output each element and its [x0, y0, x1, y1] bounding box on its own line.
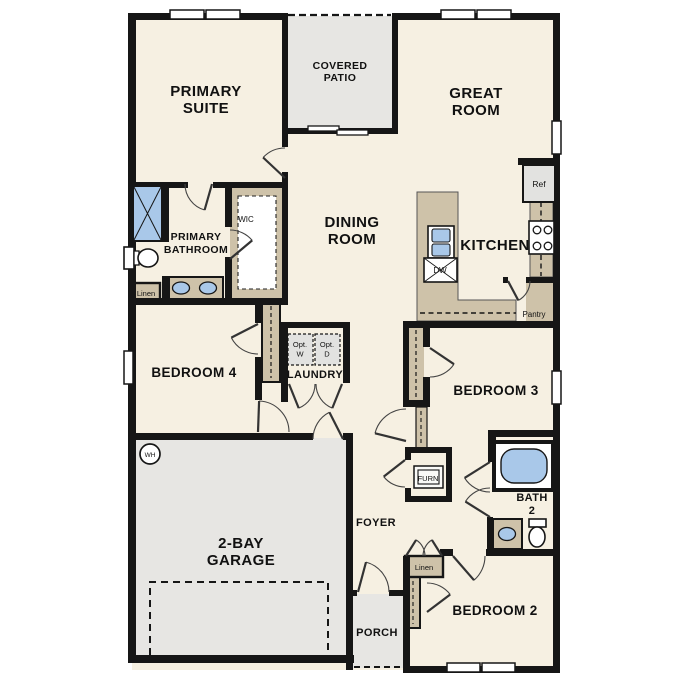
wall — [281, 322, 350, 328]
label-wh: WH — [145, 452, 156, 459]
wall — [281, 322, 288, 402]
wall — [488, 430, 560, 437]
room-label-foyer: FOYER — [356, 517, 396, 529]
wall — [503, 277, 508, 283]
room-label-kitchen: KITCHEN — [460, 237, 529, 254]
wall — [213, 182, 288, 188]
room-label-bedroom4: BEDROOM 4 — [151, 365, 236, 380]
wall — [346, 590, 357, 596]
wic-inner — [238, 196, 276, 289]
wall — [128, 13, 136, 663]
wall — [423, 377, 430, 403]
label-pantry: Pantry — [522, 310, 545, 319]
wall — [255, 302, 262, 323]
wall — [423, 328, 430, 347]
room-label-dining-room: DININGROOM — [325, 214, 380, 248]
wall — [392, 13, 398, 134]
window — [170, 10, 204, 19]
wall — [255, 357, 262, 400]
room-label-bedroom3: BEDROOM 3 — [453, 383, 538, 398]
wall — [518, 158, 556, 165]
wall — [346, 433, 353, 670]
wall — [128, 433, 313, 440]
label-linen-primary: Linen — [137, 289, 155, 298]
window — [552, 371, 561, 404]
kitchen-sink-basin — [432, 244, 450, 256]
wall — [392, 13, 560, 20]
wall — [403, 556, 410, 668]
wall — [225, 182, 232, 227]
wall — [282, 13, 288, 147]
wall — [446, 447, 452, 502]
label-furn: FURN — [418, 474, 439, 483]
toilet-tank — [124, 247, 134, 269]
wall — [553, 13, 560, 673]
sliding-door-panel — [337, 130, 368, 135]
wall — [403, 321, 560, 328]
room-label-great-room: GREATROOM — [449, 85, 502, 119]
room-label-wic: WIC — [238, 215, 254, 224]
door-leaf — [258, 401, 259, 432]
toilet-bowl — [529, 527, 545, 547]
wall — [405, 496, 452, 502]
wall — [487, 517, 493, 550]
tub — [501, 449, 547, 483]
window — [552, 121, 561, 154]
label-dw: DW — [433, 266, 447, 275]
label-linen-hall: Linen — [415, 563, 433, 572]
wall — [486, 549, 560, 556]
floor-plan-svg: PRIMARYSUITECOVEREDPATIOGREATROOMDININGR… — [0, 0, 687, 687]
window — [206, 10, 240, 19]
wall — [405, 488, 411, 502]
room-label-porch: PORCH — [356, 627, 398, 639]
wall — [526, 277, 560, 283]
wall — [403, 325, 409, 407]
window — [441, 10, 475, 19]
wall — [405, 447, 411, 460]
window — [124, 351, 133, 384]
wall — [403, 400, 430, 407]
wall — [282, 185, 288, 305]
window — [482, 663, 515, 672]
label-ref: Ref — [532, 179, 546, 189]
toilet-bowl — [138, 249, 158, 267]
wall — [225, 257, 232, 305]
sink — [499, 528, 516, 541]
wall — [343, 322, 350, 383]
sink — [200, 282, 217, 294]
floor-plan: PRIMARYSUITECOVEREDPATIOGREATROOMDININGR… — [0, 0, 687, 687]
wall — [128, 298, 288, 305]
window — [477, 10, 511, 19]
wall — [128, 655, 354, 663]
wall — [405, 447, 452, 453]
sink — [173, 282, 190, 294]
room-label-primary-bathroom: PRIMARYBATHROOM — [164, 231, 228, 256]
room-label-bedroom2: BEDROOM 2 — [452, 603, 537, 618]
kitchen-sink-basin — [432, 229, 450, 242]
sliding-door-panel — [308, 126, 339, 131]
wall — [162, 277, 170, 299]
toilet-tank — [529, 519, 546, 527]
room-label-laundry: LAUNDRY — [287, 369, 343, 381]
window — [447, 663, 480, 672]
